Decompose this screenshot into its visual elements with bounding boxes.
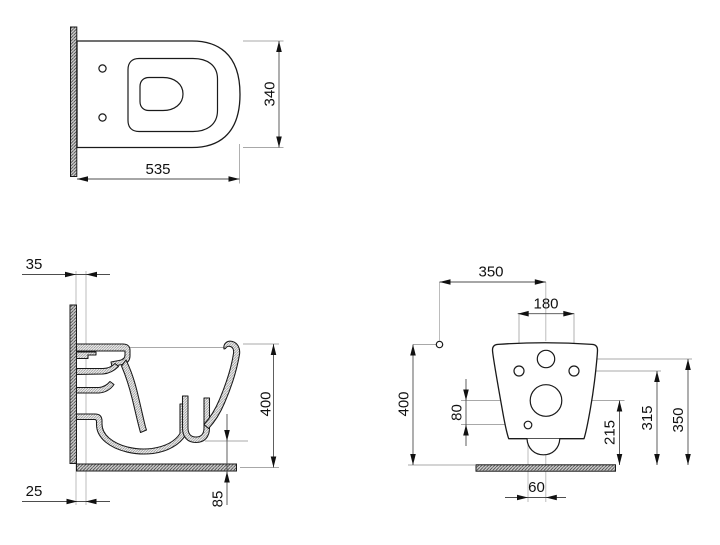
outlet-bulge xyxy=(527,439,560,455)
seat-fixing-hole xyxy=(99,65,106,72)
fixing-bolt-hole xyxy=(514,366,524,376)
wall-section xyxy=(71,27,77,177)
dim-fixing-offset-label: 350 xyxy=(478,264,503,281)
technical-drawing-canvas: 535 340 35 25 xyxy=(0,0,720,545)
dim-outlet-clearance-label: 85 xyxy=(210,491,227,508)
lower-channel-section xyxy=(77,382,115,394)
floor-section xyxy=(476,465,616,471)
dim-inlet-height-label: 350 xyxy=(670,407,687,432)
dim-hole-offset-label: 60 xyxy=(528,479,545,496)
fixing-bolt-hole xyxy=(569,366,579,376)
water-inlet-hole xyxy=(537,350,554,367)
drain-hole xyxy=(530,385,562,417)
seat-fixing-hole xyxy=(99,114,106,121)
bowl-opening xyxy=(140,78,183,111)
dim-bolt-spacing-label: 180 xyxy=(533,296,558,313)
bowl-back-wall-section xyxy=(122,360,147,433)
bowl-bottom-section xyxy=(77,404,186,454)
fixing-reference-point xyxy=(436,341,442,347)
floor-section xyxy=(77,464,237,471)
dim-drain-height-label: 215 xyxy=(602,420,619,445)
technical-drawing-page: 535 340 35 25 xyxy=(0,0,720,545)
side-view: 35 25 400 85 xyxy=(22,256,279,507)
dim-rear-height-label: 400 xyxy=(396,391,413,416)
dim-drain-to-hole-label: 80 xyxy=(449,404,466,421)
dim-floor-offset-label: 25 xyxy=(26,483,43,500)
outlet-siphon-section xyxy=(183,396,210,443)
dim-side-height-label: 400 xyxy=(258,391,275,416)
rear-view: 350 180 400 80 215 315 350 60 xyxy=(396,264,693,503)
dim-top-width-label: 535 xyxy=(145,161,170,178)
dim-top-depth-label: 340 xyxy=(262,81,279,106)
top-view: 535 340 xyxy=(71,27,284,184)
drill-hole xyxy=(524,421,532,429)
back-step-section xyxy=(77,352,97,359)
dim-bolt-height-label: 315 xyxy=(639,405,656,430)
wall-section xyxy=(70,305,77,464)
dim-wall-offset-label: 35 xyxy=(26,256,43,273)
